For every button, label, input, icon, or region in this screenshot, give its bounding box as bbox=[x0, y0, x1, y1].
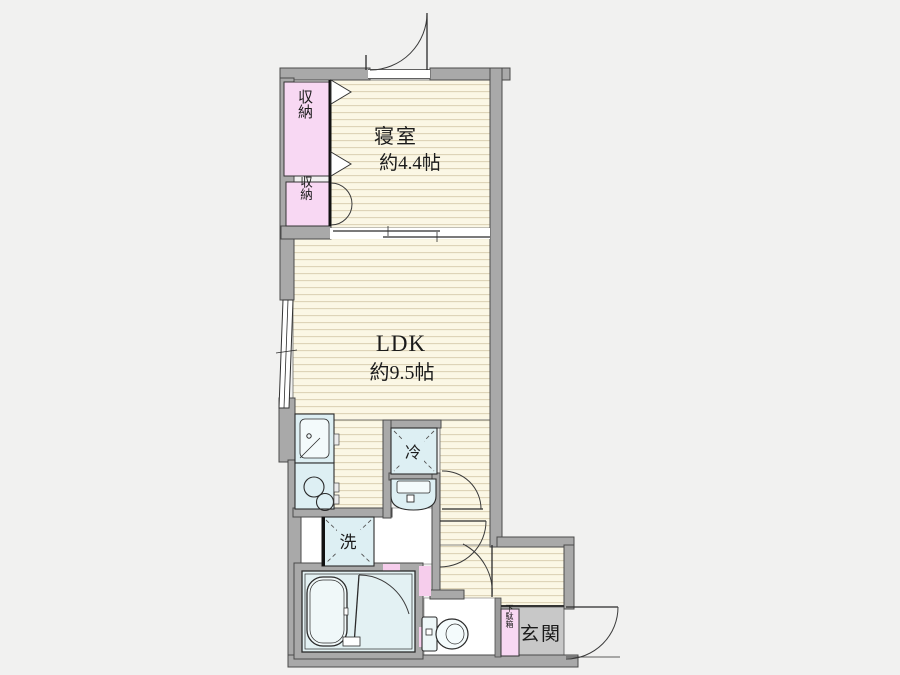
washbasin bbox=[391, 479, 436, 510]
floor-plan-page: 寝室 約4.4帖 LDK 約9.5帖 収納 収納 冷 洗 玄関 下駄箱 bbox=[0, 0, 900, 675]
wall-toilet-top bbox=[430, 590, 464, 599]
washer-label: 洗 bbox=[340, 533, 357, 552]
kitchen-stove-unit bbox=[295, 463, 334, 509]
kitchen-sink-basin bbox=[300, 419, 329, 458]
closet-upper-label: 収納 bbox=[296, 89, 313, 120]
balcony-opening bbox=[368, 69, 430, 79]
entrance-door-arc bbox=[566, 607, 618, 659]
washbasin-faucet-icon bbox=[407, 495, 414, 502]
wall-toilet-right bbox=[495, 598, 501, 657]
bathtub-faucet-icon bbox=[344, 608, 348, 615]
wall-fridge-left bbox=[383, 420, 391, 518]
balcony-door-arc bbox=[370, 13, 427, 70]
refrigerator-label: 冷 bbox=[405, 444, 421, 462]
closet-lower-label: 収納 bbox=[298, 176, 312, 201]
balcony-door bbox=[366, 13, 430, 79]
wall-fridge-top bbox=[383, 420, 441, 428]
bathtub bbox=[307, 577, 347, 646]
toilet-bowl bbox=[436, 619, 468, 649]
wall-right-lower bbox=[564, 545, 574, 609]
bedroom-size-label: 約4.4帖 bbox=[379, 152, 441, 174]
bathroom bbox=[302, 571, 415, 652]
ldk-name-label: LDK bbox=[376, 331, 426, 356]
entrance-door bbox=[566, 607, 620, 659]
kitchen bbox=[295, 414, 339, 511]
ldk-size-label: 約9.5帖 bbox=[370, 361, 435, 384]
wall-step-right bbox=[497, 537, 574, 547]
bathroom-door-sill bbox=[343, 637, 360, 646]
wall-partition-stub bbox=[281, 226, 331, 239]
ldk-floor bbox=[293, 238, 490, 420]
washbasin-counter bbox=[397, 481, 430, 493]
floor-plan-drawing: 寝室 約4.4帖 LDK 約9.5帖 収納 収納 冷 洗 玄関 下駄箱 bbox=[0, 0, 900, 675]
bedroom-name-label: 寝室 bbox=[374, 125, 418, 148]
shoe-cabinet-label: 下駄箱 bbox=[505, 604, 514, 629]
cabinet-handle bbox=[334, 495, 339, 504]
toilet-flush-button bbox=[426, 629, 432, 635]
cabinet-handle bbox=[334, 483, 339, 492]
cabinet-handle bbox=[334, 434, 339, 445]
wall-right-upper bbox=[490, 68, 502, 547]
entrance-label: 玄関 bbox=[520, 623, 562, 645]
wall-accent-1 bbox=[419, 566, 431, 596]
